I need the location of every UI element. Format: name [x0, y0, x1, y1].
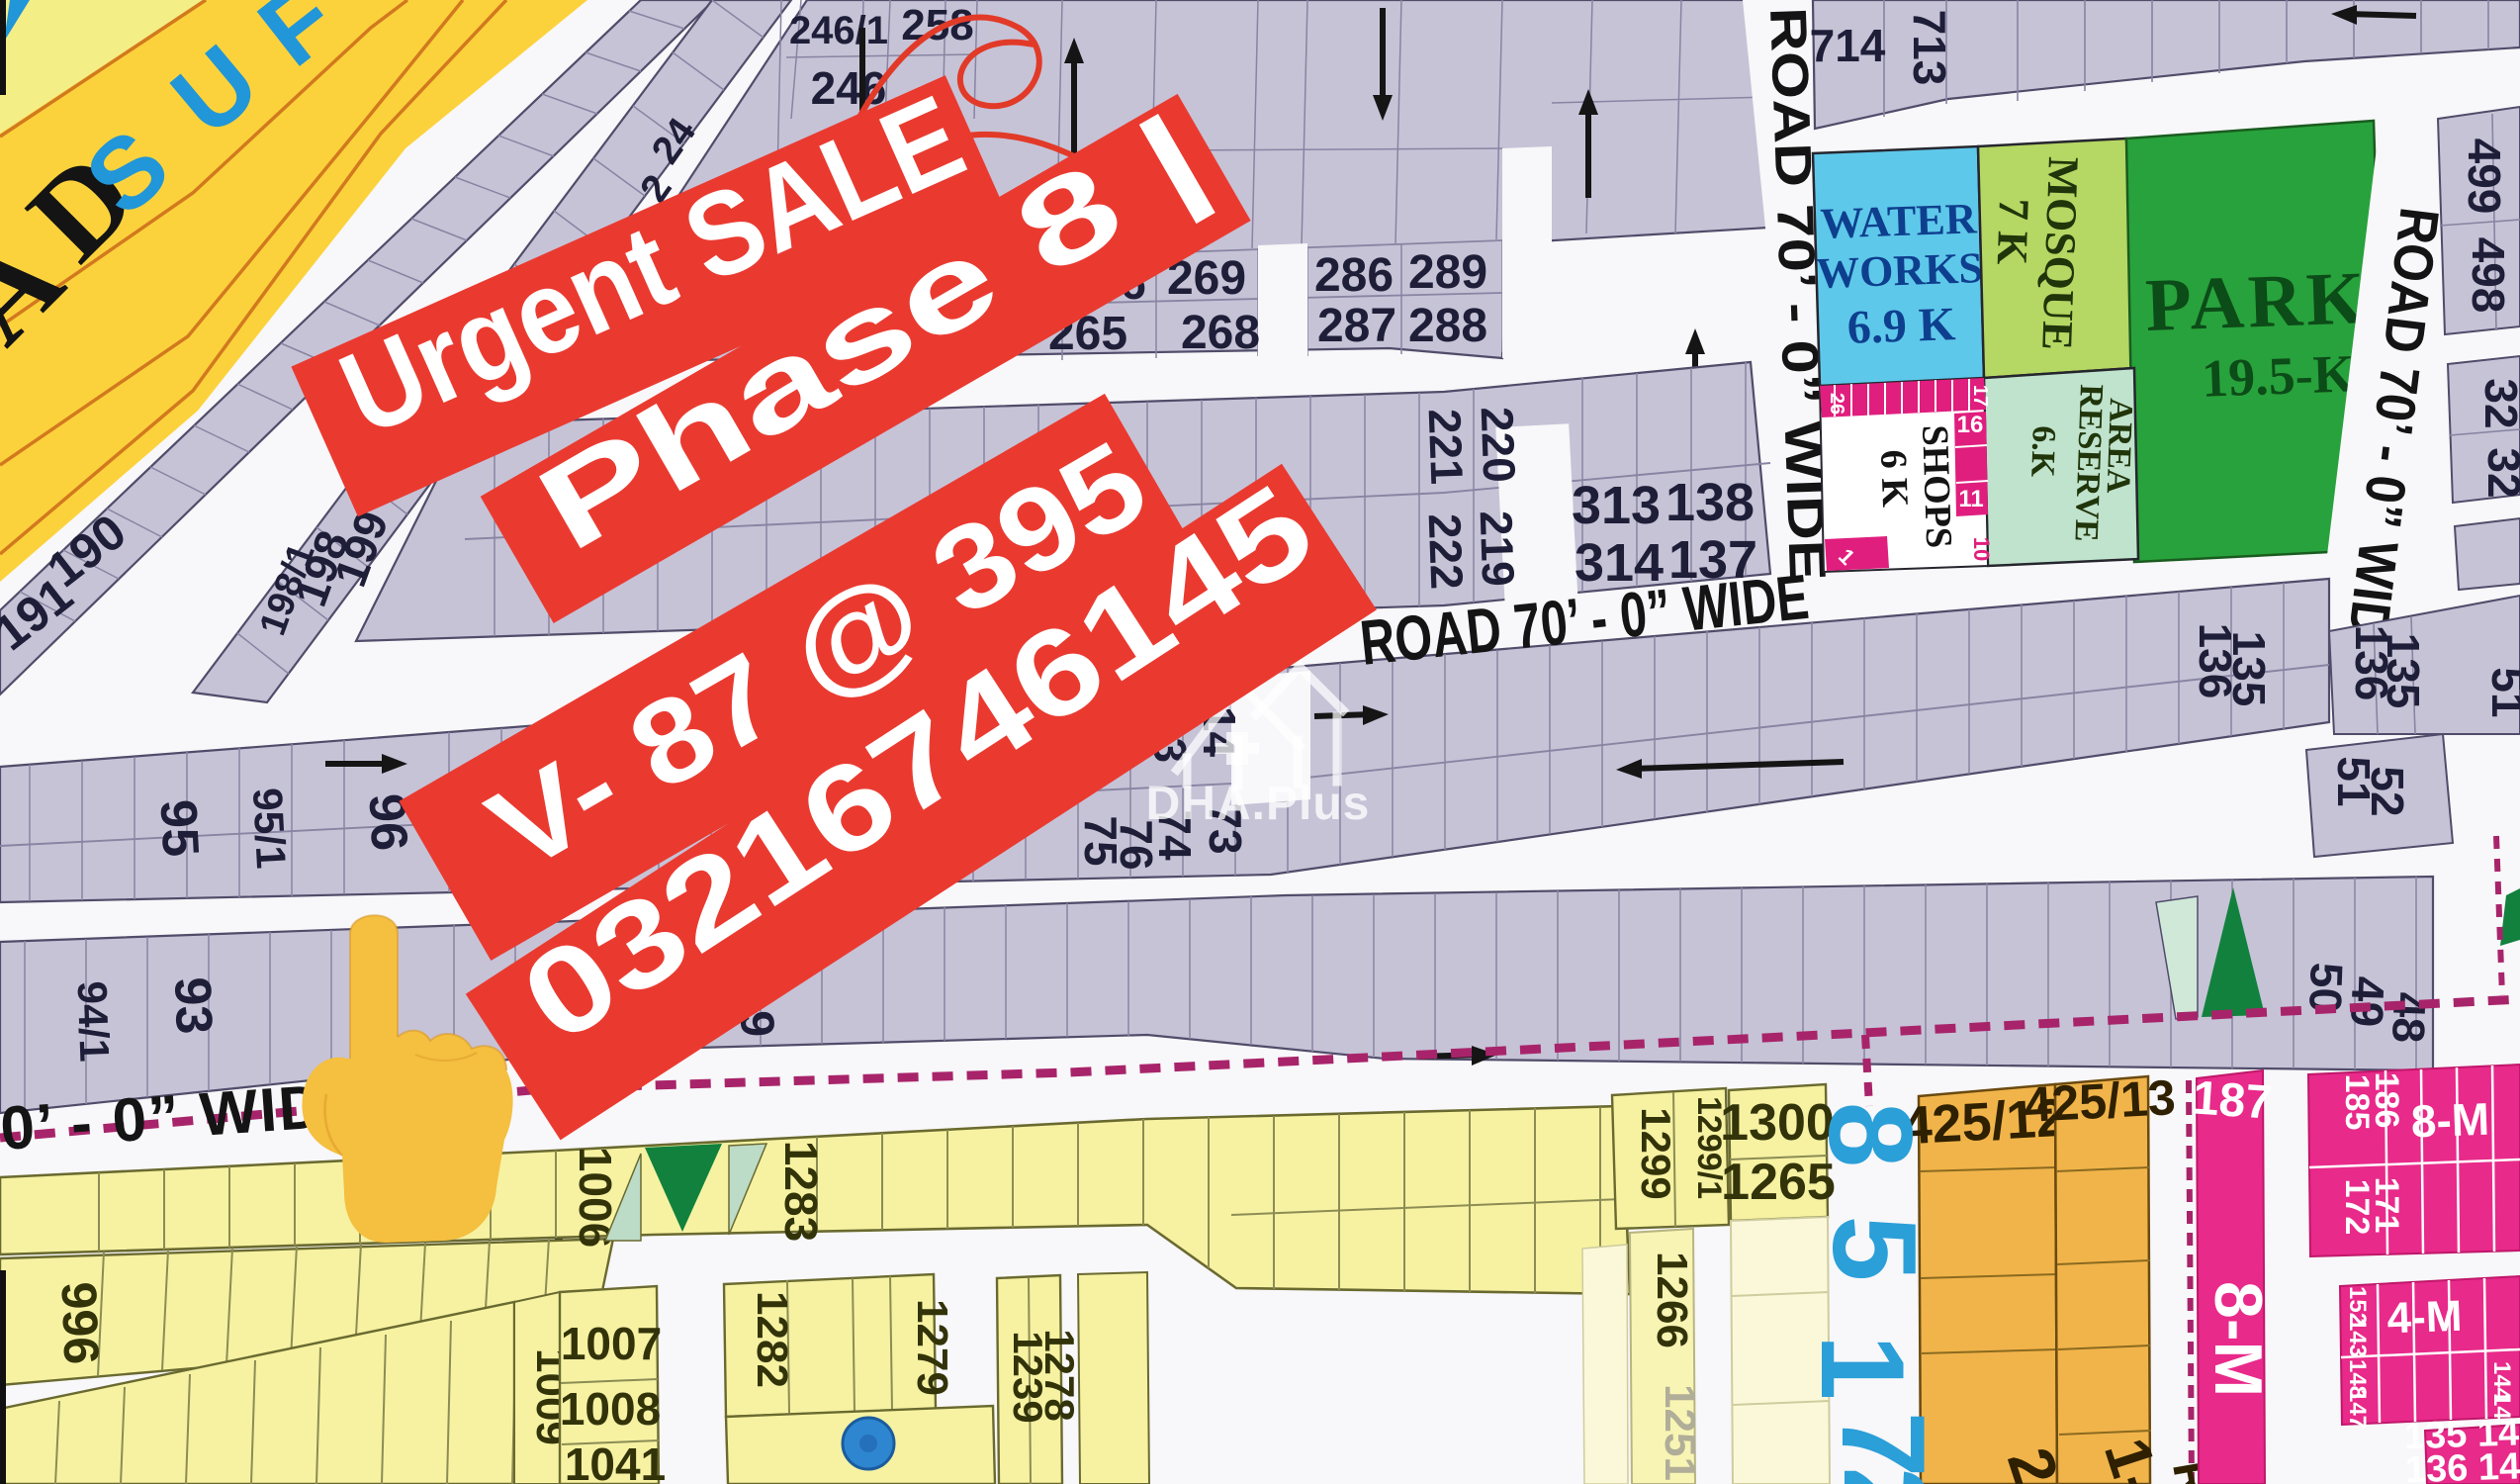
svg-text:PARK: PARK — [2144, 256, 2370, 347]
svg-text:95: 95 — [149, 798, 210, 859]
svg-text:SHOPS: SHOPS — [1914, 424, 1959, 549]
svg-text:4-M: 4-M — [2386, 1292, 2463, 1344]
svg-text:10: 10 — [1969, 537, 1994, 561]
svg-text:DHA.Plus: DHA.Plus — [1146, 778, 1371, 830]
svg-text:5: 5 — [1808, 1216, 1940, 1282]
svg-text:1266: 1266 — [1648, 1252, 1696, 1348]
svg-text:1251: 1251 — [1656, 1384, 1704, 1481]
svg-text:1008: 1008 — [560, 1383, 661, 1435]
svg-text:138: 138 — [1665, 473, 1755, 532]
svg-text:996: 996 — [51, 1281, 110, 1365]
svg-text:713: 713 — [1904, 10, 1955, 86]
svg-text:143: 143 — [2344, 1318, 2371, 1357]
svg-text:WORKS: WORKS — [1815, 243, 1983, 298]
svg-text:287: 287 — [1317, 300, 1396, 352]
svg-text:171: 171 — [2368, 1177, 2405, 1234]
svg-text:222: 222 — [1419, 512, 1474, 591]
svg-text:11: 11 — [1958, 486, 1983, 512]
svg-text:AREA: AREA — [2100, 398, 2139, 495]
svg-text:MOSQUE: MOSQUE — [2032, 156, 2088, 351]
svg-text:1282: 1282 — [748, 1291, 796, 1388]
svg-text:135: 135 — [2378, 633, 2429, 709]
svg-text:1283: 1283 — [775, 1141, 827, 1242]
svg-text:6.K: 6.K — [2024, 425, 2062, 479]
svg-text:7 K: 7 K — [1988, 198, 2038, 266]
svg-text:16: 16 — [1957, 412, 1984, 438]
svg-text:136 141: 136 141 — [2404, 1445, 2520, 1484]
svg-text:32: 32 — [2478, 447, 2520, 498]
svg-text:52: 52 — [2362, 766, 2413, 816]
svg-text:219: 219 — [1471, 510, 1525, 588]
svg-text:1279: 1279 — [908, 1299, 956, 1396]
svg-text:135: 135 — [2223, 631, 2275, 707]
svg-text:6 K: 6 K — [1872, 449, 1916, 509]
svg-text:425/13: 425/13 — [2023, 1069, 2177, 1133]
svg-text:6.9 K: 6.9 K — [1846, 298, 1956, 354]
svg-text:93: 93 — [163, 975, 223, 1035]
svg-text:2: 2 — [1819, 1467, 1951, 1484]
svg-text:286: 286 — [1314, 249, 1394, 302]
svg-text:1299: 1299 — [1633, 1107, 1679, 1199]
svg-text:1041: 1041 — [565, 1438, 666, 1484]
svg-text:499: 499 — [2459, 139, 2510, 215]
svg-text:32: 32 — [2475, 378, 2520, 428]
svg-text:8-M: 8-M — [2410, 1093, 2490, 1148]
svg-text:498: 498 — [2463, 237, 2514, 314]
svg-text:95/1: 95/1 — [244, 787, 295, 870]
svg-text:187: 187 — [2191, 1071, 2274, 1129]
svg-text:19.5-K: 19.5-K — [2201, 343, 2356, 408]
svg-text:258: 258 — [901, 1, 973, 49]
svg-text:94/1: 94/1 — [69, 980, 119, 1063]
svg-text:268: 268 — [1181, 307, 1260, 359]
svg-text:714: 714 — [1810, 20, 1886, 71]
svg-text:51: 51 — [2482, 667, 2520, 717]
svg-text:1278: 1278 — [1036, 1329, 1083, 1421]
svg-text:48: 48 — [2383, 991, 2436, 1044]
svg-text:8: 8 — [1804, 1102, 1936, 1168]
svg-text:1: 1 — [1796, 1335, 1929, 1401]
svg-text:288: 288 — [1408, 300, 1487, 352]
svg-text:1007: 1007 — [561, 1318, 662, 1369]
svg-text:17: 17 — [1969, 385, 1991, 407]
svg-text:WATER: WATER — [1820, 194, 1979, 248]
svg-text:221: 221 — [1419, 408, 1474, 486]
svg-text:8-M: 8-M — [2201, 1281, 2276, 1397]
svg-text:313: 313 — [1572, 476, 1661, 535]
svg-text:26: 26 — [1826, 393, 1847, 415]
svg-text:220: 220 — [1472, 406, 1526, 484]
svg-text:246/1: 246/1 — [789, 9, 888, 52]
svg-text:289: 289 — [1408, 246, 1487, 299]
svg-text:186: 186 — [2368, 1072, 2405, 1129]
svg-text:147: 147 — [2344, 1389, 2371, 1429]
